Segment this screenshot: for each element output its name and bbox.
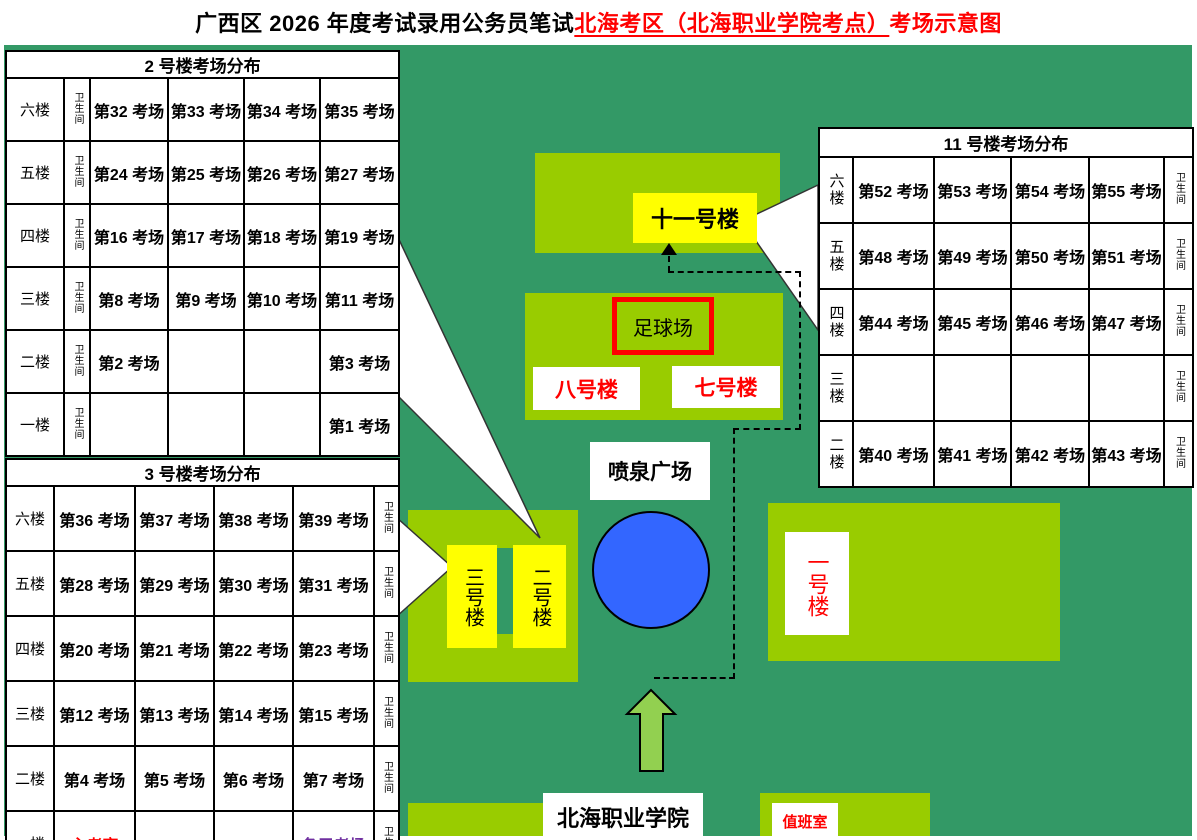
floor-cell: 五楼	[6, 141, 64, 204]
floor-cell: 三楼	[819, 355, 853, 421]
room-cell: 第29 考场	[135, 551, 214, 616]
room-cell: 第13 考场	[135, 681, 214, 746]
room-cell	[244, 330, 320, 393]
room-cell: 第38 考场	[214, 486, 293, 551]
room-cell: 第51 考场	[1089, 223, 1164, 289]
route-dash-h1	[668, 271, 801, 273]
title-black-part: 广西区 2026 年度考试录用公务员笔试	[195, 11, 574, 36]
floor-cell: 五楼	[6, 551, 54, 616]
room-cell: 第9 考场	[168, 267, 244, 330]
room-cell	[934, 355, 1011, 421]
room-cell: 第48 考场	[853, 223, 934, 289]
floor-cell: 六楼	[819, 157, 853, 223]
room-cell: 第7 考场	[293, 746, 374, 811]
room-cell: 第40 考场	[853, 421, 934, 487]
room-cell	[244, 393, 320, 456]
room-cell: 主考室	[54, 811, 135, 840]
room-cell: 第36 考场	[54, 486, 135, 551]
room-cell: 第35 考场	[320, 78, 399, 141]
table-header: 2 号楼考场分布	[6, 51, 399, 78]
toilet-cell: 卫生间	[374, 811, 399, 840]
room-cell: 第23 考场	[293, 616, 374, 681]
building-7-label: 七号楼	[672, 366, 780, 408]
room-cell: 第21 考场	[135, 616, 214, 681]
room-cell: 第11 考场	[320, 267, 399, 330]
room-cell: 第42 考场	[1011, 421, 1089, 487]
room-cell: 第16 考场	[90, 204, 168, 267]
room-cell: 第22 考场	[214, 616, 293, 681]
toilet-cell: 卫生间	[374, 681, 399, 746]
toilet-cell: 卫生间	[64, 330, 90, 393]
building2-table: 2 号楼考场分布六楼卫生间第32 考场第33 考场第34 考场第35 考场五楼卫…	[5, 50, 400, 457]
table-header: 11 号楼考场分布	[819, 128, 1193, 157]
toilet-cell: 卫生间	[1164, 223, 1193, 289]
room-cell: 第49 考场	[934, 223, 1011, 289]
room-cell	[853, 355, 934, 421]
page-title: 广西区 2026 年度考试录用公务员笔试北海考区（北海职业学院考点）考场示意图	[0, 6, 1197, 38]
room-cell: 第2 考场	[90, 330, 168, 393]
room-cell: 第46 考场	[1011, 289, 1089, 355]
floor-cell: 五楼	[819, 223, 853, 289]
floor-cell: 三楼	[6, 267, 64, 330]
tower-2-label: 二号楼	[513, 545, 566, 648]
toilet-cell: 卫生间	[64, 393, 90, 456]
fountain-plaza-label: 喷泉广场	[590, 442, 710, 500]
toilet-cell: 卫生间	[1164, 289, 1193, 355]
duty-room-label: 值班室	[772, 803, 838, 840]
floor-cell: 二楼	[819, 421, 853, 487]
floor-cell: 四楼	[6, 204, 64, 267]
route-dash-v1	[799, 271, 801, 430]
room-cell: 第8 考场	[90, 267, 168, 330]
toilet-cell: 卫生间	[374, 616, 399, 681]
room-cell: 第14 考场	[214, 681, 293, 746]
room-cell: 备用考场	[293, 811, 374, 840]
room-cell	[1089, 355, 1164, 421]
room-cell: 第32 考场	[90, 78, 168, 141]
room-cell: 第18 考场	[244, 204, 320, 267]
soccer-field-label: 足球场	[612, 297, 714, 355]
room-cell: 第39 考场	[293, 486, 374, 551]
room-cell: 第10 考场	[244, 267, 320, 330]
room-cell	[1011, 355, 1089, 421]
room-cell: 第37 考场	[135, 486, 214, 551]
room-cell: 第34 考场	[244, 78, 320, 141]
route-dash-v2	[733, 428, 735, 679]
room-cell: 第28 考场	[54, 551, 135, 616]
room-cell: 第6 考场	[214, 746, 293, 811]
room-cell: 第55 考场	[1089, 157, 1164, 223]
toilet-cell: 卫生间	[1164, 355, 1193, 421]
room-cell: 第33 考场	[168, 78, 244, 141]
toilet-cell: 卫生间	[374, 486, 399, 551]
floor-cell: 三楼	[6, 681, 54, 746]
toilet-cell: 卫生间	[64, 78, 90, 141]
room-cell: 第53 考场	[934, 157, 1011, 223]
room-cell: 第31 考场	[293, 551, 374, 616]
room-cell: 第25 考场	[168, 141, 244, 204]
toilet-cell: 卫生间	[64, 141, 90, 204]
room-cell: 第19 考场	[320, 204, 399, 267]
room-cell	[135, 811, 214, 840]
toilet-cell: 卫生间	[1164, 157, 1193, 223]
toilet-cell: 卫生间	[1164, 421, 1193, 487]
room-cell: 第15 考场	[293, 681, 374, 746]
room-cell	[168, 393, 244, 456]
fountain-circle	[592, 511, 710, 629]
room-cell: 第4 考场	[54, 746, 135, 811]
title-red-underlined-part: 北海考区（北海职业学院考点）	[574, 11, 889, 36]
room-cell: 第45 考场	[934, 289, 1011, 355]
campus-gate-label: 北海职业学院	[543, 793, 703, 840]
room-cell: 第52 考场	[853, 157, 934, 223]
room-cell: 第44 考场	[853, 289, 934, 355]
floor-cell: 六楼	[6, 486, 54, 551]
room-cell: 第24 考场	[90, 141, 168, 204]
building11-table: 11 号楼考场分布六楼第52 考场第53 考场第54 考场第55 考场卫生间五楼…	[818, 127, 1194, 488]
room-cell	[168, 330, 244, 393]
room-cell: 第54 考场	[1011, 157, 1089, 223]
route-dash-h2	[733, 428, 801, 430]
room-cell: 第41 考场	[934, 421, 1011, 487]
route-dash-top	[668, 256, 670, 272]
building-11-label: 十一号楼	[633, 193, 757, 243]
room-cell: 第12 考场	[54, 681, 135, 746]
floor-cell: 二楼	[6, 330, 64, 393]
floor-cell: 四楼	[819, 289, 853, 355]
room-cell: 第5 考场	[135, 746, 214, 811]
table-header: 3 号楼考场分布	[6, 459, 399, 486]
floor-cell: 一楼	[6, 811, 54, 840]
room-cell: 第27 考场	[320, 141, 399, 204]
room-cell: 第47 考场	[1089, 289, 1164, 355]
toilet-cell: 卫生间	[374, 551, 399, 616]
room-cell: 第50 考场	[1011, 223, 1089, 289]
title-red-part: 考场示意图	[889, 11, 1002, 36]
floor-cell: 一楼	[6, 393, 64, 456]
route-arrowhead-icon	[661, 243, 677, 255]
room-cell	[214, 811, 293, 840]
toilet-cell: 卫生间	[64, 267, 90, 330]
route-dash-h3	[654, 677, 735, 679]
building-2-3-gap	[497, 548, 514, 634]
floor-cell: 六楼	[6, 78, 64, 141]
building-8-label: 八号楼	[533, 367, 640, 410]
toilet-cell: 卫生间	[374, 746, 399, 811]
tower-3-label: 三号楼	[447, 545, 497, 648]
room-cell: 第3 考场	[320, 330, 399, 393]
room-cell: 第43 考场	[1089, 421, 1164, 487]
room-cell: 第26 考场	[244, 141, 320, 204]
room-cell: 第1 考场	[320, 393, 399, 456]
floor-cell: 二楼	[6, 746, 54, 811]
room-cell	[90, 393, 168, 456]
exam-site-map-page: 广西区 2026 年度考试录用公务员笔试北海考区（北海职业学院考点）考场示意图 …	[0, 0, 1197, 840]
floor-cell: 四楼	[6, 616, 54, 681]
gate-wall-left	[408, 803, 548, 836]
room-cell: 第20 考场	[54, 616, 135, 681]
building-1-label: 一号楼	[785, 532, 849, 635]
room-cell: 第17 考场	[168, 204, 244, 267]
building3-table: 3 号楼考场分布六楼第36 考场第37 考场第38 考场第39 考场卫生间五楼第…	[5, 458, 400, 840]
room-cell: 第30 考场	[214, 551, 293, 616]
toilet-cell: 卫生间	[64, 204, 90, 267]
